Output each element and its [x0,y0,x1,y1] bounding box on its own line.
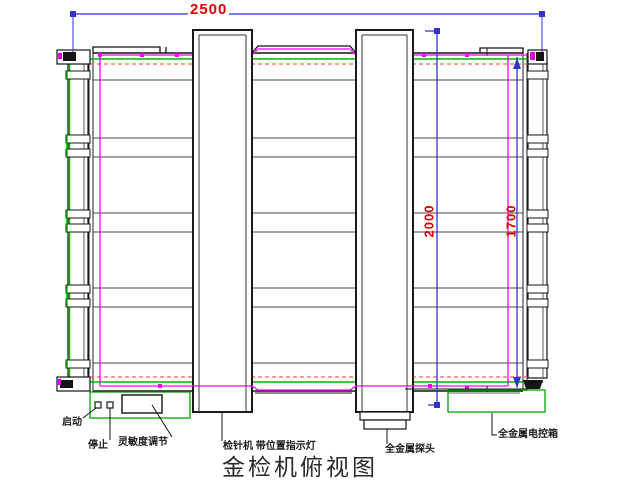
drawing-linework [0,0,627,500]
sensitivity-display[interactable] [122,395,162,413]
left-side-rail [66,62,90,378]
frame-side-edges [89,53,527,391]
conveyor-cross-beams [93,80,523,363]
corner-clamp-blocks [57,50,547,391]
dimension-2500-text: 2500 [188,2,229,17]
control-panel [90,392,190,418]
start-button[interactable] [95,402,101,408]
dimension-1700-text: 1700 [505,205,518,238]
electric-control-box [405,386,545,412]
right-side-rail [527,62,548,378]
belt-outline-magenta [100,49,530,386]
sensitivity-label: 灵敏度调节 [118,438,168,448]
green-frame-lines [70,59,543,382]
metal-detector-top-view-drawing: 2500 2000 1700 启动 停止 灵敏度调节 检针机 带位置指示灯 全金… [0,0,627,500]
drawing-title: 金检机俯视图 [222,456,378,479]
dimension-2000-text: 2000 [423,205,436,238]
metal-probe-foot [360,412,410,429]
needle-detector-label: 检针机 带位置指示灯 [223,442,316,452]
frame-top-bottom-edges [93,46,523,393]
needle-detector-bridge [193,30,252,412]
red-dashed-lines [90,64,547,377]
metal-probe-label: 全金属探头 [385,445,435,455]
control-box-label: 全金属电控箱 [498,430,558,440]
metal-probe-bridge [356,30,413,412]
stop-label: 停止 [88,441,108,451]
start-label: 启动 [62,418,82,428]
stop-button[interactable] [107,402,113,408]
